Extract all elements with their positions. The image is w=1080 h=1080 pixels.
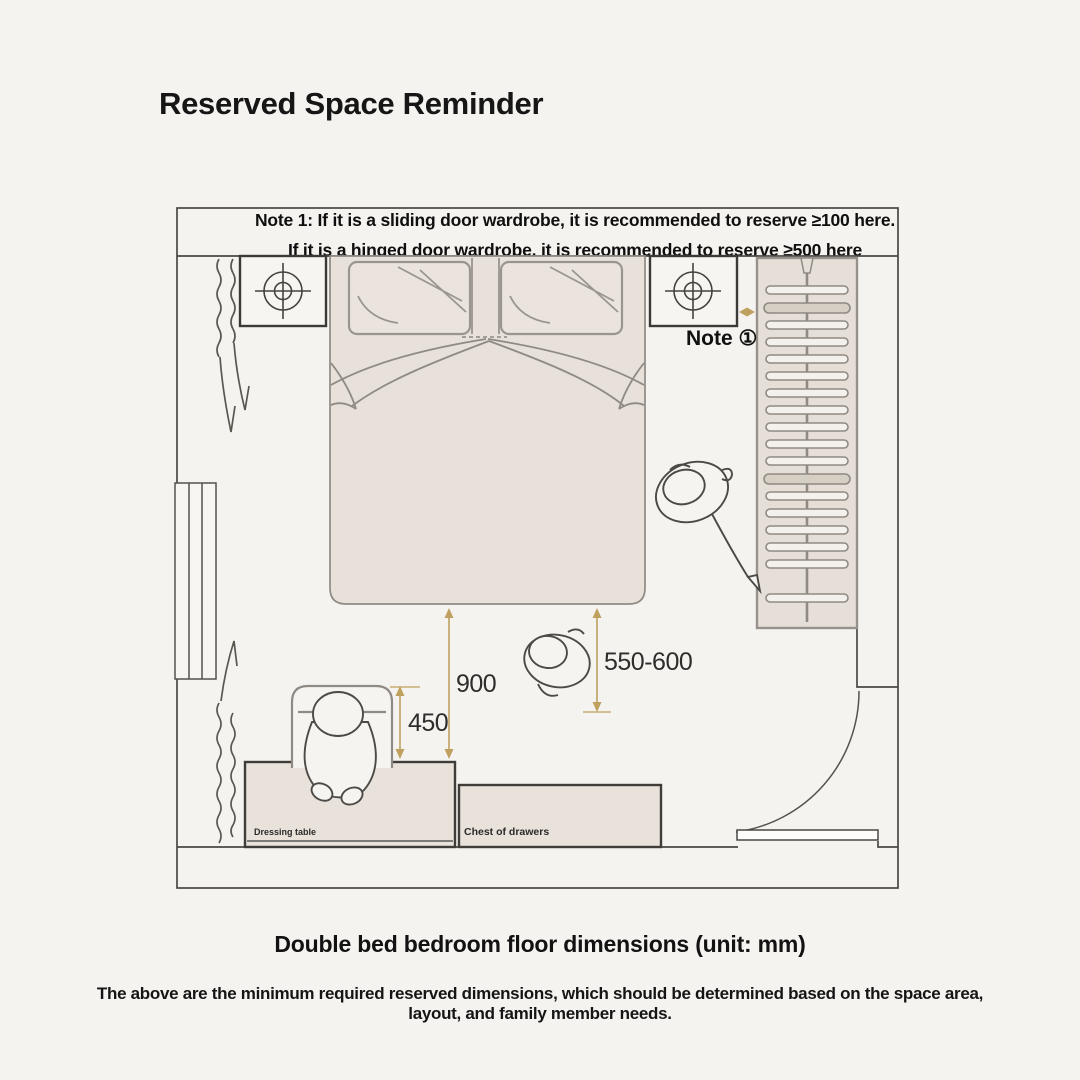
hair-line [568, 629, 584, 634]
door-jamb [857, 628, 898, 687]
pillow-right [501, 262, 622, 334]
curtain-tail [221, 641, 237, 701]
curtain-wave [231, 259, 235, 343]
window-frame [175, 483, 216, 679]
wardrobe [757, 258, 857, 628]
door [736, 691, 878, 840]
curtain-wave [231, 713, 235, 837]
curtain-icon-bottom [217, 641, 237, 843]
double-bed [330, 256, 645, 604]
person-figure-below-bed [519, 629, 594, 696]
dressing-table-label: Dressing table [254, 827, 316, 837]
diagram-caption: Double bed bedroom floor dimensions (uni… [0, 931, 1080, 958]
curtain-wave [217, 259, 221, 357]
floor-plan [0, 0, 1080, 1080]
person-figure-at-wardrobe [647, 451, 760, 591]
dimension-label-450: 450 [408, 709, 448, 738]
reserved-space-infographic: Reserved Space Reminder Note 1: If it is… [0, 0, 1080, 1080]
curtain-wave [217, 703, 221, 843]
nightstand-right [650, 256, 737, 326]
door-swing-arc [736, 691, 859, 832]
rail-mount [801, 258, 813, 273]
door-threshold-step [878, 841, 898, 847]
footer-disclaimer: The above are the minimum required reser… [0, 984, 1080, 1024]
gap-double-arrow-icon [739, 308, 755, 317]
window [175, 483, 216, 679]
pillow-left [349, 262, 470, 334]
footer-line2: layout, and family member needs. [0, 1004, 1080, 1024]
door-leaf [737, 830, 878, 840]
curtain-tail [234, 343, 249, 410]
chest-of-drawers-label: Chest of drawers [464, 826, 549, 838]
dimension-label-550-600: 550-600 [604, 648, 692, 677]
footer-line1: The above are the minimum required reser… [0, 984, 1080, 1004]
note-1-marker: Note ① [686, 326, 757, 351]
nightstand-left [240, 256, 326, 326]
curtain-tail [220, 357, 235, 432]
dimension-label-900: 900 [456, 670, 496, 699]
